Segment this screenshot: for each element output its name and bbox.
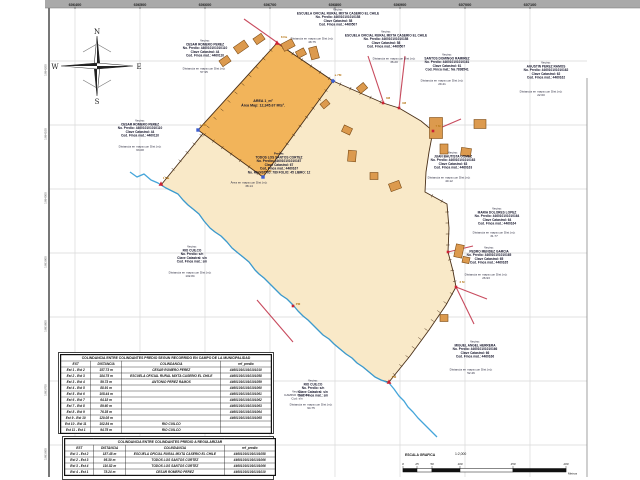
- road-line: [257, 300, 293, 342]
- boundary-marker-square: [196, 128, 199, 131]
- scale-tick-label: 200: [562, 462, 568, 466]
- building: [219, 55, 231, 66]
- scale-bar-segment: [460, 469, 513, 473]
- point-id-label: 3M: [386, 96, 391, 100]
- scale-bar-segment: [417, 469, 432, 473]
- compass-label-south: S: [95, 98, 100, 106]
- building: [233, 40, 248, 54]
- point-id-label: 8 Da: [281, 35, 288, 39]
- scale-tick-label: 100: [457, 462, 462, 466]
- scale-bar-segment: [513, 469, 566, 473]
- road-line: [368, 56, 384, 104]
- building: [462, 256, 470, 263]
- band-northing-label: 1683800: [44, 320, 48, 332]
- boundary-marker-point: [432, 130, 435, 133]
- band-easting-label: 606600: [199, 3, 212, 7]
- point-id-label: 1 Da: [163, 176, 170, 180]
- scale-bar-segment: [403, 469, 417, 473]
- road-line: [244, 19, 285, 48]
- scale-tick-label: 150: [510, 462, 515, 466]
- survey-map-sheet: 6064006065006066006067006068006069006070…: [0, 0, 640, 480]
- point-id-label: PM: [392, 375, 397, 379]
- point-id-label: 4M: [402, 101, 407, 105]
- scale-bar-segment: [432, 469, 460, 473]
- compass-diagonal: [83, 80, 97, 88]
- scale-unit-label: Metros: [568, 472, 578, 476]
- boundary-marker-square: [261, 175, 264, 178]
- band-easting-label: 606700: [264, 3, 277, 7]
- band-northing-label: 1684200: [44, 64, 48, 76]
- compass-label-north: N: [94, 28, 100, 36]
- building: [454, 244, 465, 258]
- compass-rose: N S W E: [51, 28, 141, 106]
- band-easting-label: 607000: [459, 3, 472, 7]
- band-easting-label: 606500: [134, 3, 147, 7]
- boundary-marker-point: [447, 251, 450, 254]
- scale-tick-label: 0: [402, 462, 404, 466]
- band-northing-label: 1683700: [44, 384, 48, 396]
- survey-map-canvas: 6064006065006066006067006068006069006070…: [0, 0, 640, 480]
- point-id-label: a 7M: [335, 73, 342, 77]
- boundary-marker-point: [455, 286, 458, 289]
- building: [370, 173, 378, 180]
- compass-label-east: E: [136, 63, 141, 71]
- scale-tick-label: 50: [430, 462, 434, 466]
- point-id-label: a 6M: [200, 123, 207, 127]
- building: [440, 144, 448, 154]
- building: [309, 46, 320, 60]
- band-easting-label: 606800: [329, 3, 342, 7]
- scale-tick-label: 25: [414, 462, 419, 466]
- building: [440, 315, 448, 322]
- compass-diagonal: [83, 44, 97, 52]
- band-easting-label: 607100: [524, 3, 537, 7]
- point-id-label: PM: [296, 302, 301, 306]
- compass-needle-west-fill: [61, 63, 97, 66]
- point-id-label: 2 M: [459, 280, 465, 284]
- building: [348, 150, 357, 162]
- boundary-marker-point: [398, 107, 401, 110]
- band-easting-label: 606900: [394, 3, 407, 7]
- building: [474, 120, 486, 129]
- point-id-label: 7 M: [435, 124, 441, 128]
- compass-diagonal: [97, 80, 111, 88]
- point-id-label: a 7M: [265, 169, 272, 173]
- building: [253, 33, 265, 44]
- compass-label-west: W: [51, 63, 59, 71]
- building: [460, 147, 471, 156]
- boundary-marker-point: [292, 305, 295, 308]
- scale-bar-title: ESCALA GRAFICA: [405, 453, 436, 457]
- boundary-marker-point: [382, 102, 385, 105]
- band-northing-label: 1684000: [44, 192, 48, 204]
- band-northing-label: 1684100: [44, 128, 48, 140]
- compass-diagonal: [97, 44, 111, 52]
- band-northing-label: 1683900: [44, 256, 48, 268]
- band-easting-label: 606400: [69, 3, 82, 7]
- scale-ratio: 1:2,000: [455, 452, 466, 456]
- building: [430, 118, 443, 139]
- band-northing-label: 1683600: [44, 448, 48, 460]
- scale-bar: ESCALA GRAFICA1:2,00002550100150200Metro…: [402, 452, 578, 476]
